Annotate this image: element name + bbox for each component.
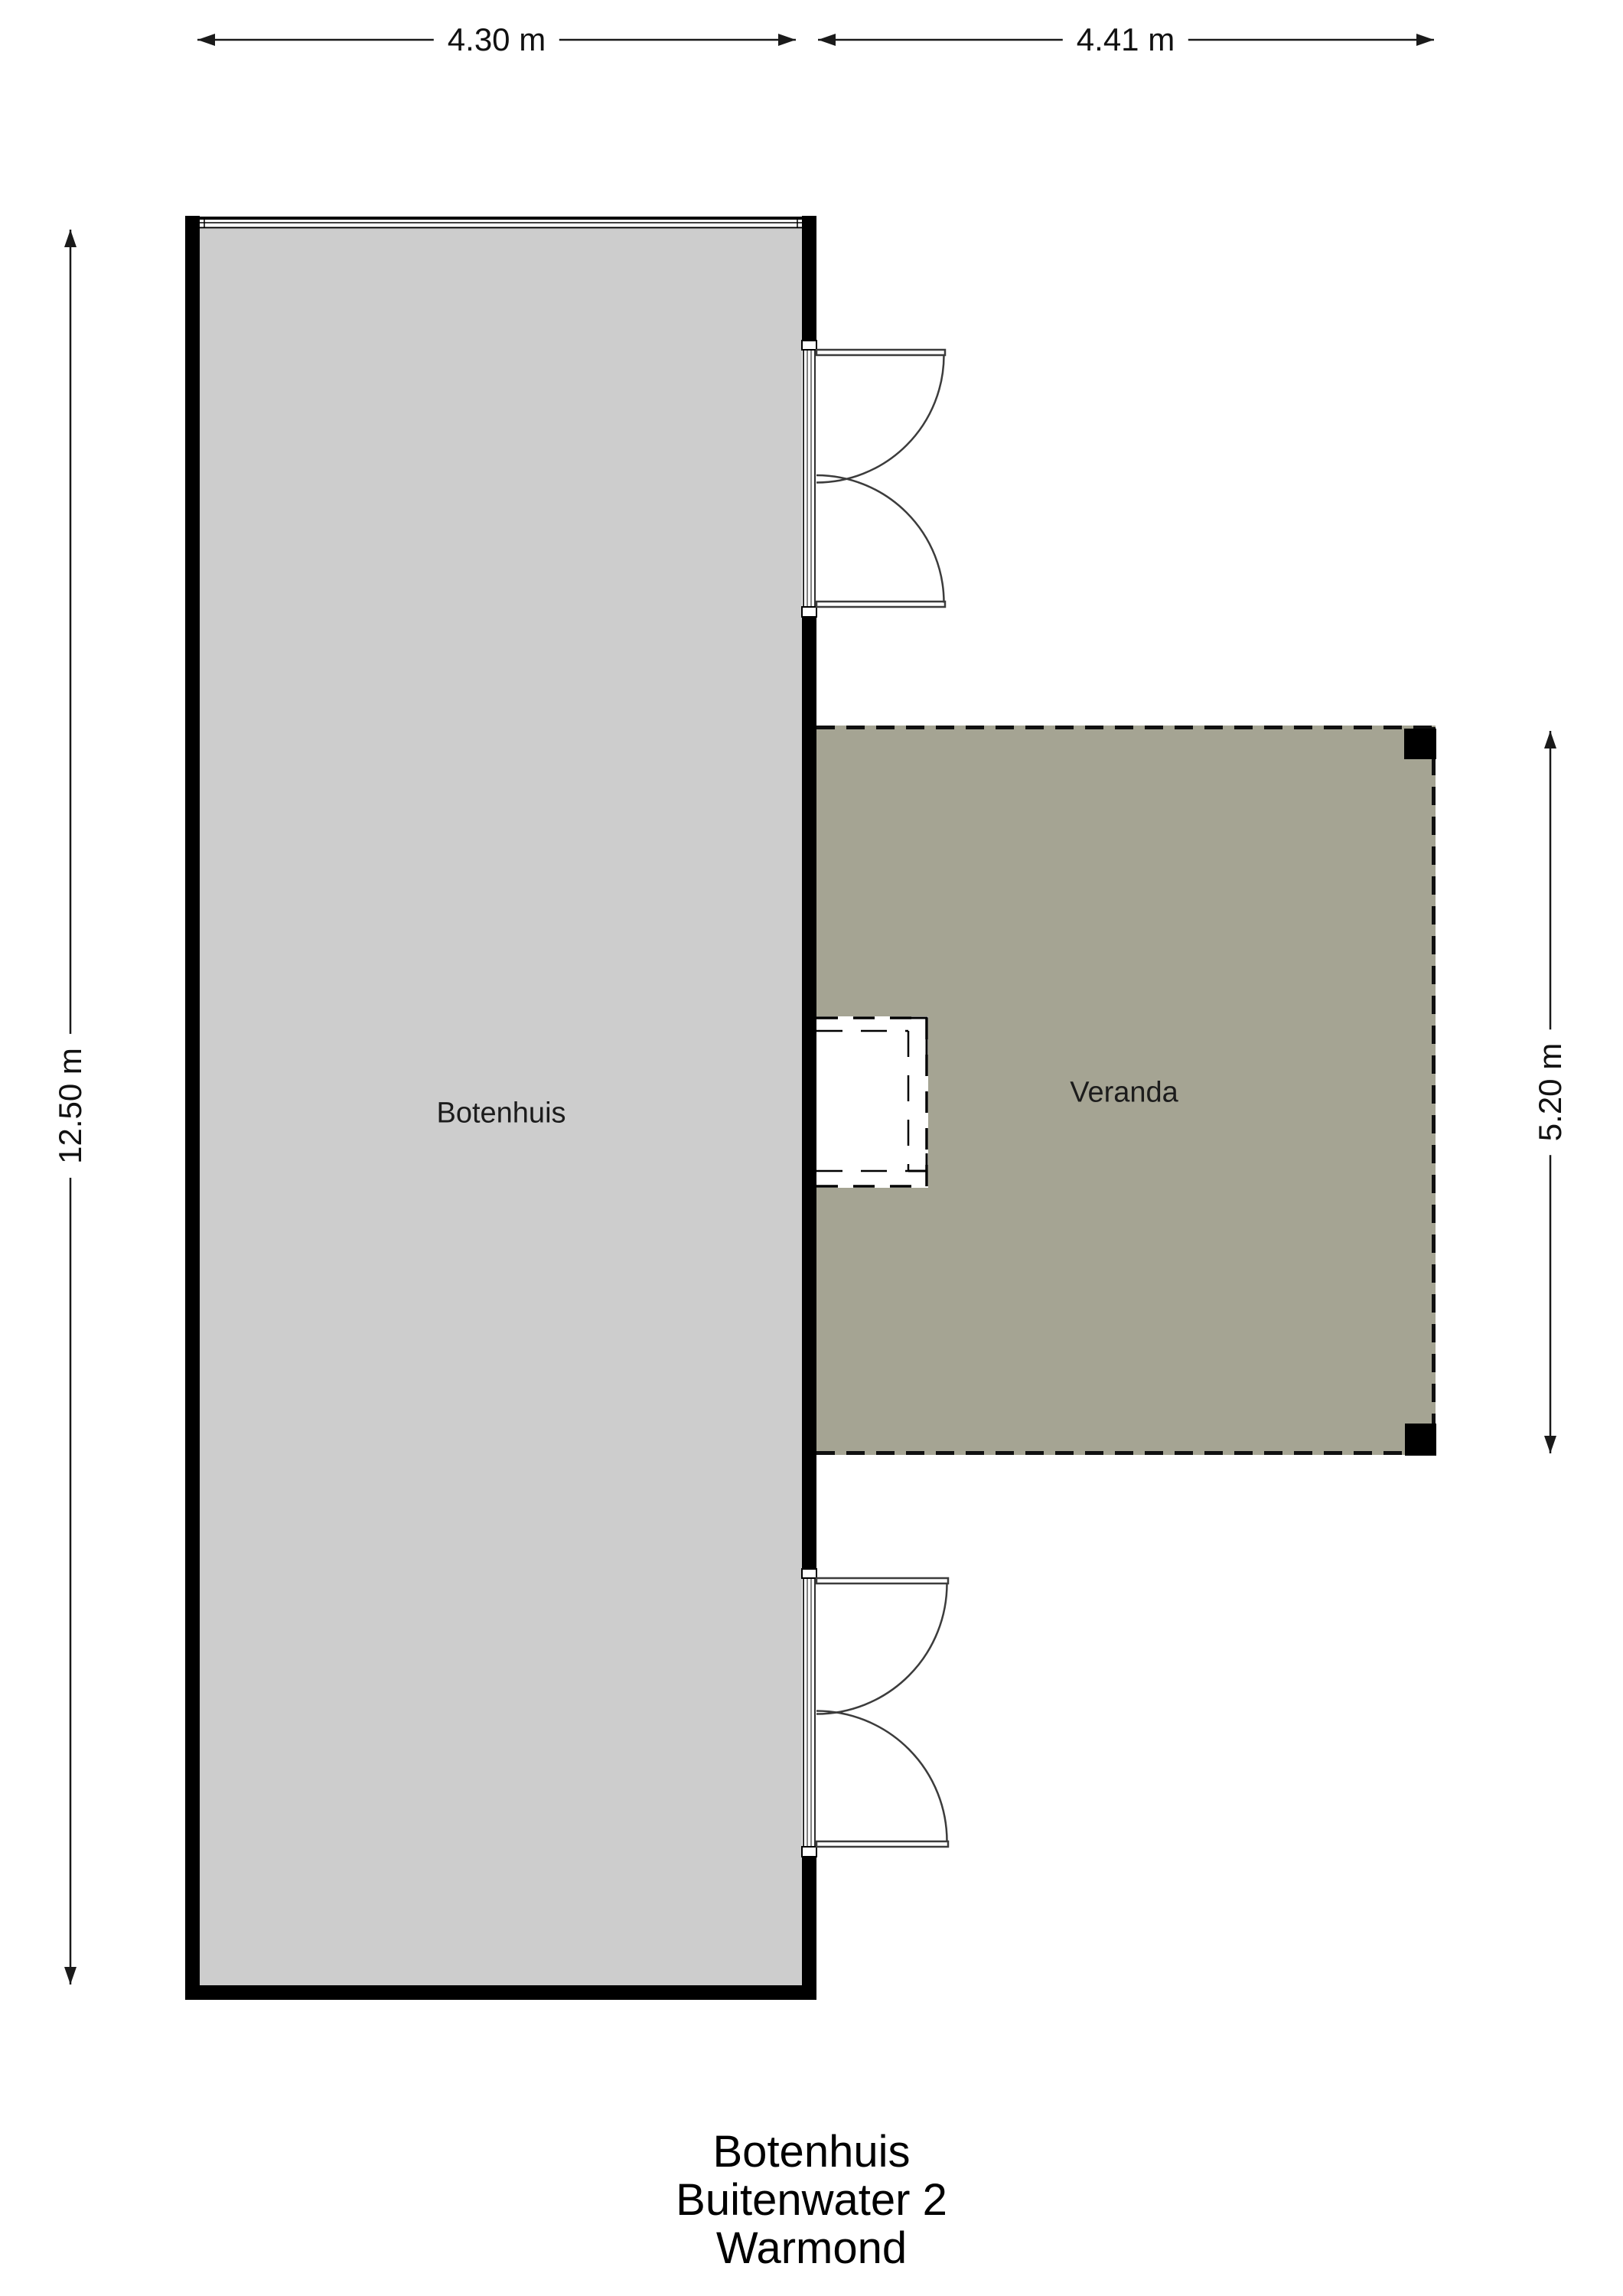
door-bottom-leaf-upper bbox=[816, 1578, 948, 1583]
door-bottom-frame-upper bbox=[802, 1569, 816, 1578]
wall-right-lower bbox=[802, 1857, 816, 2000]
window-strip-top bbox=[200, 217, 802, 229]
floor-plan-drawing bbox=[0, 0, 1623, 2296]
plan-title: Botenhuis Buitenwater 2 Warmond bbox=[0, 2128, 1623, 2272]
double-door-bottom bbox=[802, 1569, 948, 1857]
door-top-leaf-lower bbox=[816, 602, 945, 607]
door-top-frame-lower bbox=[802, 607, 816, 617]
room-label-veranda: Veranda bbox=[1070, 1077, 1178, 1110]
door-top-swing-arc-lower bbox=[816, 475, 944, 603]
arrowhead-left bbox=[818, 34, 836, 46]
wall-right-upper bbox=[802, 216, 816, 341]
plan-title-line-2: Buitenwater 2 bbox=[0, 2176, 1623, 2224]
floor-plan: 4.30 m 4.41 m 12.50 m 5.20 m Botenhuis V… bbox=[0, 0, 1623, 2296]
door-top-leaf-upper bbox=[816, 350, 945, 355]
arrowhead-left bbox=[197, 34, 215, 46]
dimension-label-veranda-depth: 5.20 m bbox=[1530, 1029, 1570, 1155]
double-door-top bbox=[802, 341, 945, 617]
door-bottom-swing-arc-lower bbox=[816, 1711, 947, 1842]
wall-hatch bbox=[816, 1016, 928, 1188]
arrowhead-down bbox=[64, 1967, 77, 1985]
plan-title-line-3: Warmond bbox=[0, 2224, 1623, 2272]
veranda-post-bottom-right bbox=[1405, 1424, 1436, 1456]
arrowhead-right bbox=[778, 34, 796, 46]
door-bottom-swing-arc-upper bbox=[816, 1583, 947, 1714]
door-bottom-leaf-lower bbox=[816, 1841, 948, 1847]
arrowhead-up bbox=[1544, 731, 1556, 748]
arrowhead-down bbox=[1544, 1436, 1556, 1453]
arrowhead-right bbox=[1416, 34, 1434, 46]
arrowhead-up bbox=[64, 230, 77, 247]
door-top-frame-upper bbox=[802, 341, 816, 350]
room-label-botenhuis: Botenhuis bbox=[436, 1097, 565, 1130]
wall-left bbox=[185, 216, 200, 2000]
wall-bottom bbox=[185, 1985, 816, 2000]
plan-title-line-1: Botenhuis bbox=[0, 2128, 1623, 2176]
door-bottom-frame-lower bbox=[802, 1847, 816, 1857]
veranda-post-top-right bbox=[1404, 729, 1436, 759]
door-top-swing-arc-upper bbox=[816, 355, 944, 483]
dimension-label-botenhuis-width: 4.30 m bbox=[434, 20, 559, 60]
wall-right-middle bbox=[802, 618, 816, 1569]
dimension-label-botenhuis-depth: 12.50 m bbox=[51, 1034, 90, 1178]
hatch-fill bbox=[816, 1016, 928, 1188]
dimension-label-veranda-width: 4.41 m bbox=[1063, 20, 1188, 60]
